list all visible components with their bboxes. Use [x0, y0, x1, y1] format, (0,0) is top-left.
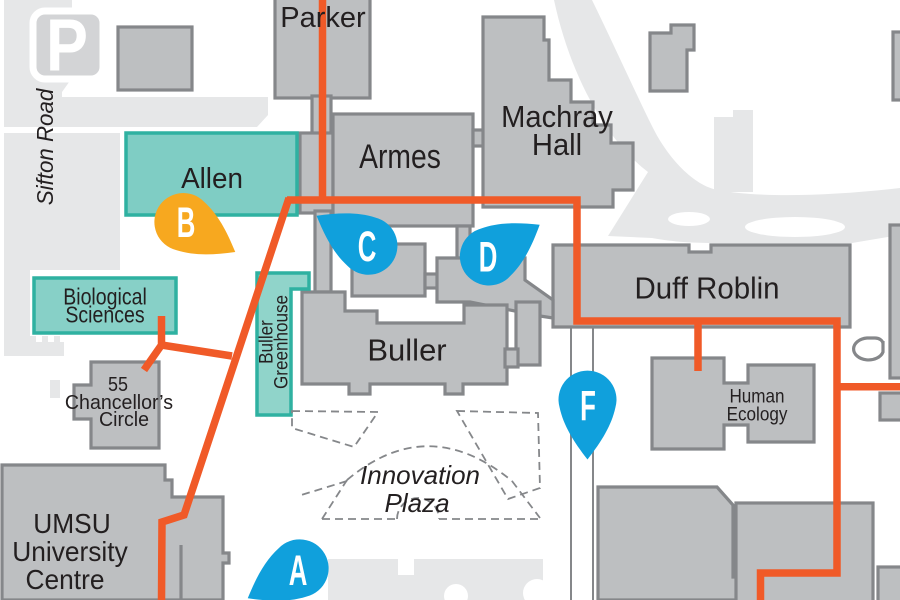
svg-text:Greenhouse: Greenhouse: [270, 295, 291, 389]
svg-text:C: C: [358, 222, 377, 271]
svg-text:Duff Roblin: Duff Roblin: [634, 272, 779, 306]
svg-text:Centre: Centre: [26, 563, 105, 595]
svg-text:D: D: [479, 233, 498, 282]
svg-text:P: P: [46, 4, 88, 87]
svg-text:F: F: [580, 382, 596, 431]
svg-text:Armes: Armes: [359, 136, 441, 175]
svg-text:Plaza: Plaza: [384, 488, 449, 518]
svg-text:Circle: Circle: [99, 409, 149, 431]
svg-text:Innovation: Innovation: [360, 460, 480, 490]
svg-text:Parker: Parker: [280, 2, 366, 34]
svg-text:Sifton Road: Sifton Road: [32, 87, 58, 205]
svg-text:A: A: [289, 546, 308, 595]
svg-text:Sciences: Sciences: [65, 302, 144, 328]
svg-text:Hall: Hall: [532, 128, 582, 162]
svg-text:Ecology: Ecology: [727, 403, 788, 424]
svg-text:Allen: Allen: [181, 163, 243, 196]
svg-text:Buller: Buller: [367, 333, 446, 368]
svg-text:B: B: [177, 198, 196, 247]
